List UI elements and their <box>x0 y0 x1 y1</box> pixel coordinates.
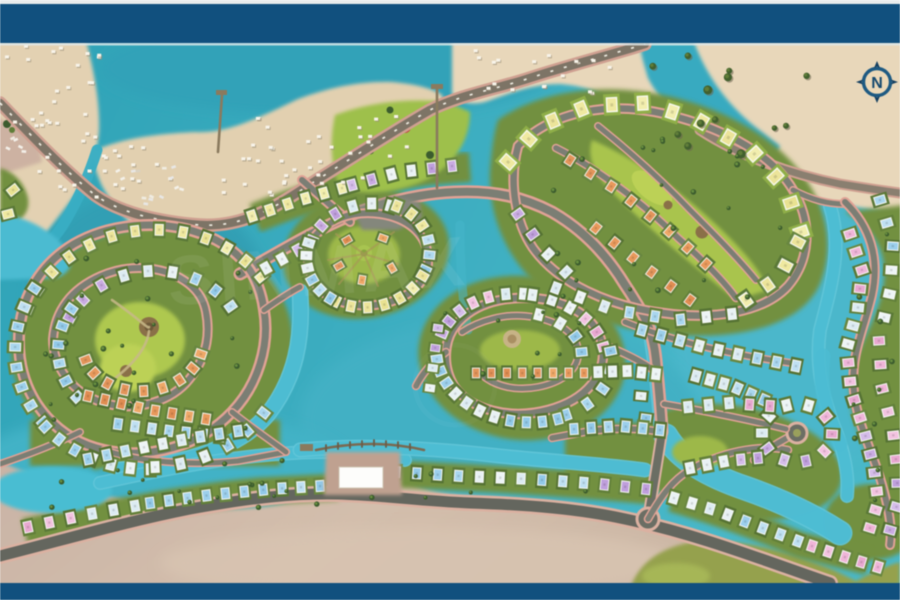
svg-text:N: N <box>871 75 883 92</box>
